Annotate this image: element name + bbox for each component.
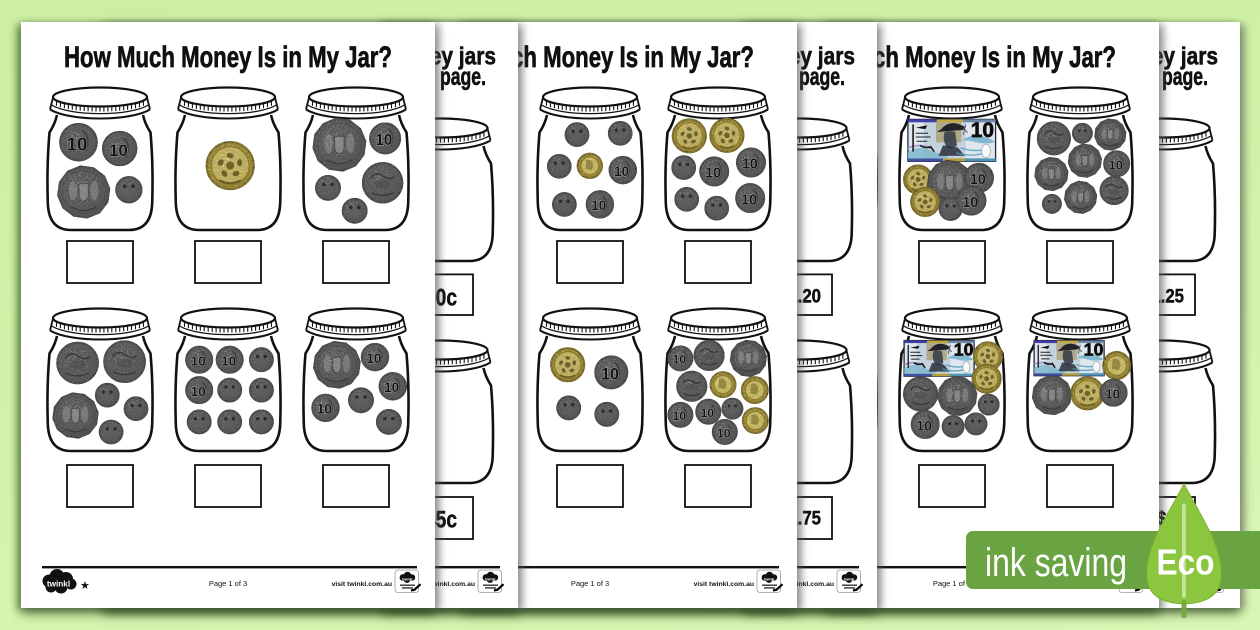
svg-text:10: 10 — [614, 164, 629, 179]
svg-text:twinkl: twinkl — [402, 578, 412, 582]
svg-text:Eco: Eco — [1157, 542, 1215, 583]
svg-text:twinkl: twinkl — [485, 578, 495, 582]
svg-text:10: 10 — [384, 380, 399, 395]
svg-text:10: 10 — [673, 353, 687, 367]
svg-text:10: 10 — [717, 426, 731, 440]
svg-text:10: 10 — [191, 353, 206, 368]
svg-text:twinkl: twinkl — [844, 578, 854, 582]
svg-text:10: 10 — [601, 365, 619, 383]
svg-text:page.: page. — [799, 63, 845, 91]
svg-text:visit twinkl.com.au: visit twinkl.com.au — [694, 581, 754, 588]
svg-text:Page 1 of 3: Page 1 of 3 — [209, 579, 247, 588]
svg-text:10: 10 — [970, 172, 986, 188]
svg-text:10: 10 — [1105, 386, 1120, 401]
svg-text:10: 10 — [954, 340, 974, 360]
svg-text:page.: page. — [1162, 63, 1208, 91]
svg-text:10: 10 — [109, 141, 128, 160]
svg-text:10: 10 — [67, 133, 88, 154]
svg-text:10: 10 — [962, 195, 978, 211]
svg-text:10: 10 — [317, 402, 332, 417]
svg-text:10: 10 — [971, 119, 994, 142]
svg-text:ink saving: ink saving — [985, 541, 1127, 585]
svg-text:10: 10 — [705, 166, 721, 182]
svg-text:10: 10 — [221, 353, 236, 368]
svg-text:10: 10 — [1109, 157, 1123, 172]
svg-text:10: 10 — [741, 192, 757, 208]
svg-text:page.: page. — [440, 63, 486, 91]
svg-text:twinkl: twinkl — [47, 580, 70, 589]
svg-text:10: 10 — [375, 132, 392, 149]
svg-text:10: 10 — [591, 198, 606, 213]
svg-text:10: 10 — [1084, 339, 1104, 359]
svg-text:10: 10 — [191, 384, 206, 399]
svg-text:10: 10 — [701, 406, 715, 420]
svg-text:twinkl: twinkl — [764, 578, 774, 582]
svg-text:10: 10 — [742, 157, 758, 173]
svg-text:★: ★ — [80, 580, 90, 592]
svg-text:How Much Money Is in My Jar?: How Much Money Is in My Jar? — [64, 41, 392, 74]
svg-text:10: 10 — [673, 409, 687, 423]
svg-text:10: 10 — [366, 351, 381, 366]
svg-text:10: 10 — [916, 418, 932, 433]
svg-text:visit twinkl.com.au: visit twinkl.com.au — [332, 581, 392, 588]
svg-text:Page 1 of 3: Page 1 of 3 — [571, 579, 609, 588]
